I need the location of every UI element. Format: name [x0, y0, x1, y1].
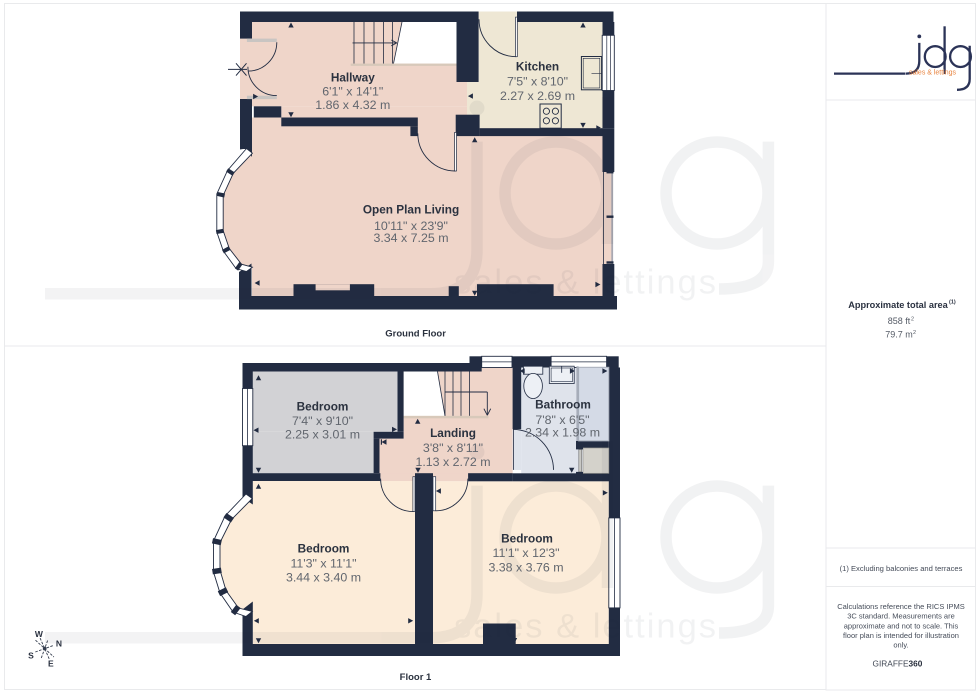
svg-text:2: 2: [911, 317, 914, 323]
svg-text:1.86 x 4.32 m: 1.86 x 4.32 m: [315, 98, 390, 112]
svg-text:858 ft: 858 ft: [888, 316, 911, 326]
svg-text:Bedroom: Bedroom: [298, 542, 350, 556]
svg-text:11'3" x 11'1": 11'3" x 11'1": [290, 557, 356, 571]
svg-text:(1) Excluding balconies and te: (1) Excluding balconies and terraces: [840, 564, 963, 573]
svg-text:Bedroom: Bedroom: [297, 400, 349, 414]
svg-text:GIRAFFE: GIRAFFE: [873, 659, 909, 669]
svg-text:360: 360: [909, 659, 923, 669]
svg-text:only.: only.: [893, 641, 908, 650]
svg-text:Kitchen: Kitchen: [516, 59, 559, 73]
svg-text:Calculations reference the RIC: Calculations reference the RICS IPMS: [837, 602, 965, 611]
svg-text:E: E: [48, 659, 54, 669]
svg-text:sales & lettings: sales & lettings: [909, 70, 957, 77]
svg-text:6'1" x 14'1": 6'1" x 14'1": [322, 84, 383, 98]
svg-text:3C standard. Measurements are: 3C standard. Measurements are: [847, 612, 955, 621]
svg-text:2: 2: [913, 330, 916, 336]
svg-text:Bathroom: Bathroom: [535, 397, 591, 411]
svg-text:(1): (1): [949, 300, 956, 306]
svg-text:approximate and not to scale.: approximate and not to scale. This: [844, 621, 959, 630]
svg-text:2.25 x 3.01 m: 2.25 x 3.01 m: [285, 427, 360, 441]
svg-text:3.38 x 3.76 m: 3.38 x 3.76 m: [488, 560, 563, 574]
svg-text:3'8" x 8'11": 3'8" x 8'11": [423, 441, 483, 455]
svg-text:floor plan is intended for ill: floor plan is intended for illustration: [843, 631, 959, 640]
svg-text:2.34 x 1.98 m: 2.34 x 1.98 m: [525, 425, 600, 439]
svg-text:Bedroom: Bedroom: [501, 532, 553, 546]
svg-text:7'4" x 9'10": 7'4" x 9'10": [292, 414, 353, 428]
svg-text:S: S: [28, 650, 34, 660]
svg-text:Landing: Landing: [430, 426, 476, 440]
svg-text:79.7 m: 79.7 m: [885, 329, 913, 339]
svg-text:W: W: [35, 629, 44, 639]
svg-text:2.27 x 2.69 m: 2.27 x 2.69 m: [500, 89, 575, 103]
svg-text:1.13 x 2.72 m: 1.13 x 2.72 m: [415, 455, 490, 469]
svg-text:Open Plan Living: Open Plan Living: [363, 203, 459, 217]
svg-text:7'5" x 8'10": 7'5" x 8'10": [507, 74, 568, 88]
svg-text:Floor 1: Floor 1: [400, 672, 432, 683]
svg-text:Approximate total area: Approximate total area: [848, 300, 948, 310]
svg-text:Ground Floor: Ground Floor: [385, 329, 446, 340]
svg-text:3.44 x 3.40 m: 3.44 x 3.40 m: [286, 571, 361, 585]
svg-text:3.34 x 7.25 m: 3.34 x 7.25 m: [373, 231, 448, 245]
svg-text:Hallway: Hallway: [331, 71, 375, 85]
svg-text:11'1" x 12'3": 11'1" x 12'3": [492, 546, 559, 560]
svg-text:N: N: [56, 639, 62, 649]
